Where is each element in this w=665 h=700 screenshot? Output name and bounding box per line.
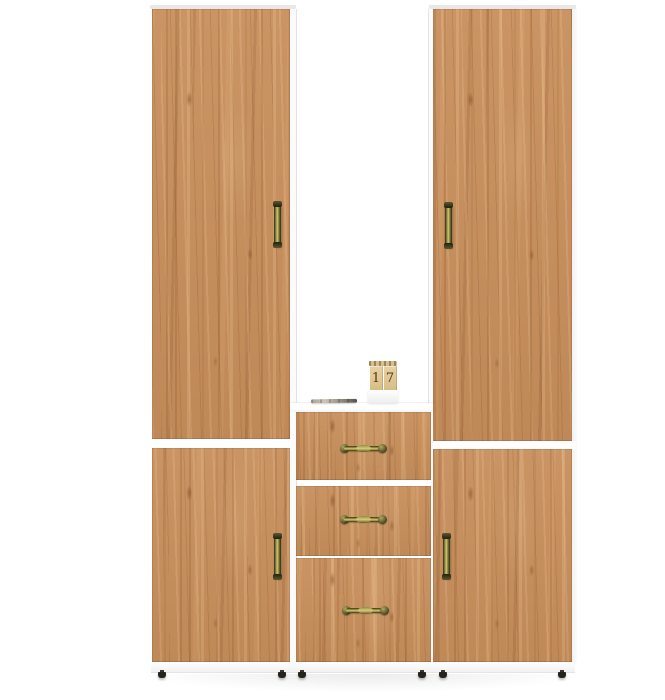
foot-4 (418, 672, 426, 678)
foot-6 (558, 672, 566, 678)
right-wardrobe-handle-icon (445, 204, 452, 247)
drawer-1-handle-icon (340, 444, 387, 453)
middle-unit-right-side (431, 412, 433, 662)
drawer-2-handle-bar (344, 517, 383, 522)
right-lower-cabinet-handle-icon (443, 535, 450, 578)
calendar-digit-left: 1 (372, 372, 380, 385)
right-wardrobe-door (433, 9, 572, 441)
left-wardrobe-side-panel (290, 9, 297, 439)
drawer-3-handle-bar (346, 608, 385, 613)
left-wardrobe-door (152, 9, 290, 439)
left-lower-cabinet-handle-icon (274, 535, 281, 578)
plinth (151, 662, 575, 673)
right-lower-cabinet-door (433, 449, 572, 662)
calendar-digit-right: 7 (386, 372, 394, 385)
right-carcass-side (572, 9, 577, 662)
pen (311, 399, 357, 403)
drawer-2-handle-icon (340, 515, 387, 524)
foot-1 (158, 672, 166, 678)
foot-2 (278, 672, 286, 678)
drawer-1-handle-bar (344, 446, 383, 451)
right-open-niche (430, 441, 576, 449)
left-open-niche (150, 439, 296, 448)
desk-calendar-cubes: 1 7 (366, 366, 400, 390)
desk-calendar: 1 7 (366, 361, 400, 403)
calendar-digit-cube-right: 7 (384, 366, 397, 390)
foot-5 (439, 672, 447, 678)
desk-calendar-base (368, 390, 398, 403)
left-lower-cabinet-door (152, 448, 290, 662)
foot-3 (298, 672, 306, 678)
left-wardrobe-handle-icon (274, 203, 281, 246)
calendar-digit-cube-left: 1 (370, 366, 383, 390)
drawer-3-handle-icon (342, 606, 389, 615)
furniture-scene: 1 7 (0, 0, 665, 700)
floor-shadow (145, 674, 581, 692)
